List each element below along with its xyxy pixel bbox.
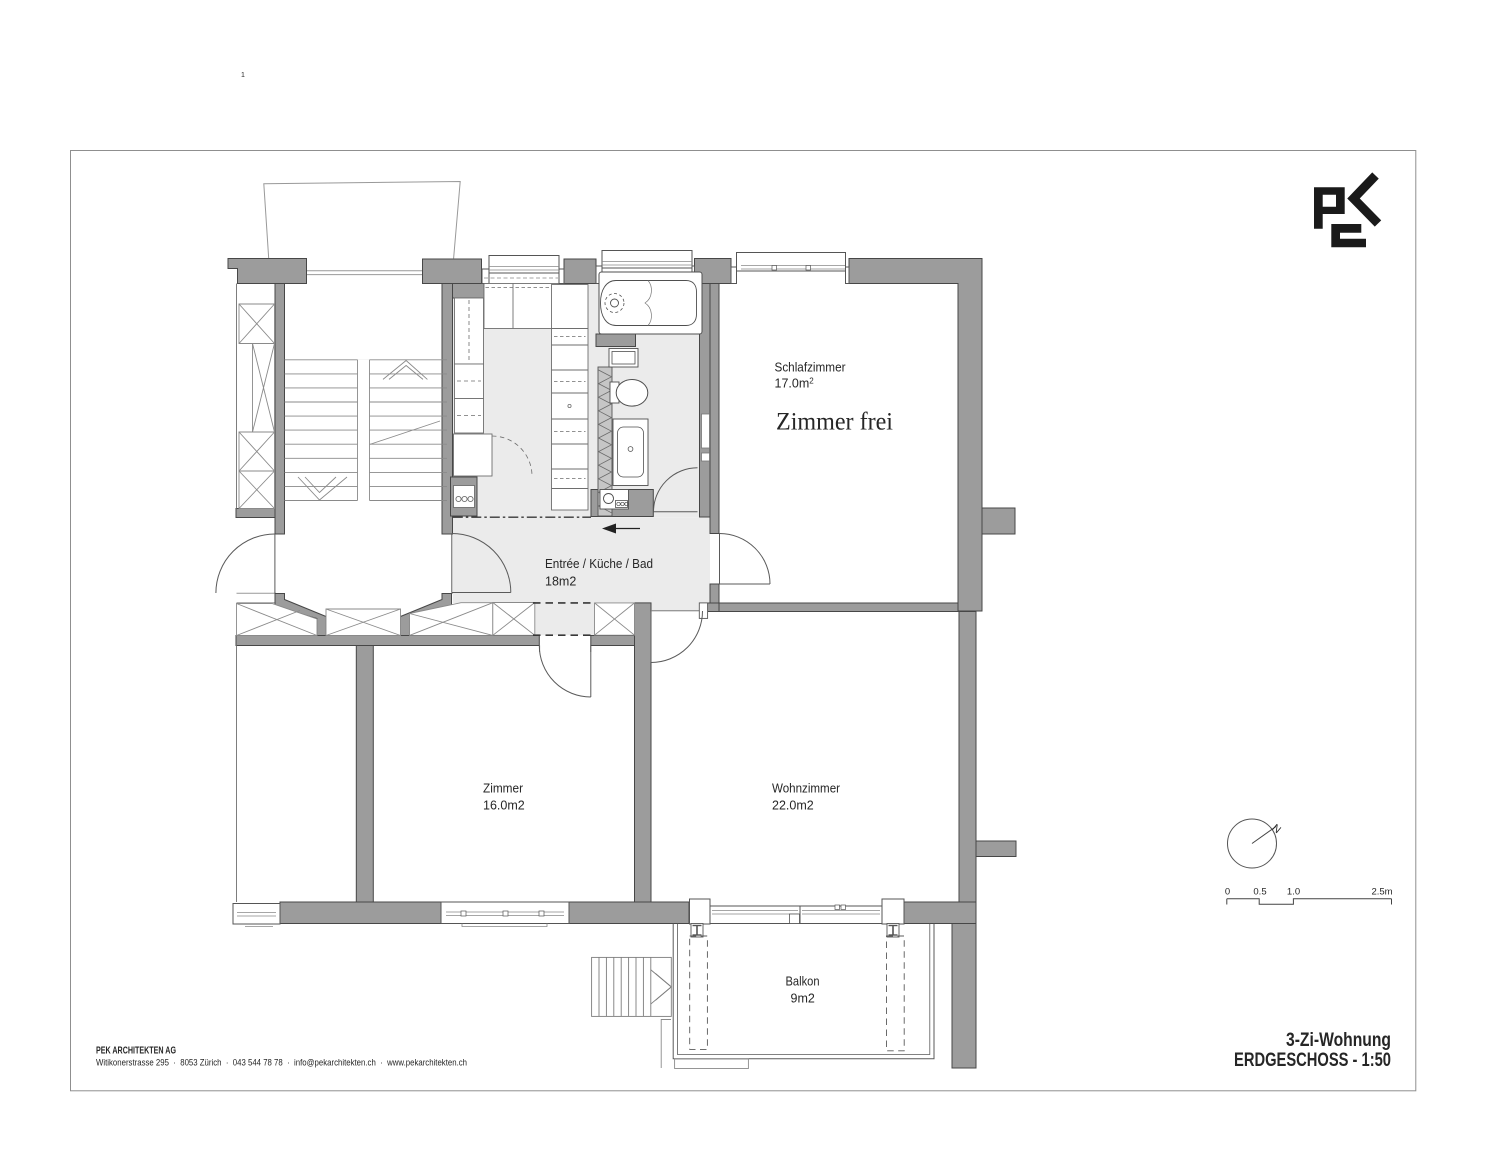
svg-text:16.0m2: 16.0m2 [483, 799, 525, 813]
svg-text:2.5m: 2.5m [1371, 887, 1392, 898]
svg-text:Balkon: Balkon [786, 974, 820, 989]
svg-text:0.5: 0.5 [1253, 887, 1266, 898]
svg-text:Witikonerstrasse 295 · 8053: Witikonerstrasse 295 · 8053 Zürich · 043… [96, 1058, 467, 1069]
svg-text:17.0m2: 17.0m2 [775, 377, 815, 391]
svg-text:Schlafzimmer: Schlafzimmer [775, 360, 847, 375]
svg-text:1.0: 1.0 [1287, 887, 1300, 898]
svg-text:1: 1 [241, 72, 245, 79]
svg-text:0: 0 [1225, 887, 1230, 898]
svg-text:PEK ARCHITEKTEN AG: PEK ARCHITEKTEN AG [96, 1046, 176, 1057]
svg-text:3-Zi-Wohnung: 3-Zi-Wohnung [1286, 1030, 1391, 1051]
svg-text:ERDGESCHOSS - 1:50: ERDGESCHOSS - 1:50 [1234, 1050, 1391, 1071]
svg-text:Wohnzimmer: Wohnzimmer [772, 781, 841, 796]
svg-text:Zimmer: Zimmer [483, 781, 524, 796]
svg-text:9m2: 9m2 [791, 992, 815, 1006]
svg-text:22.0m2: 22.0m2 [772, 799, 814, 813]
svg-text:Entrée / Küche / Bad: Entrée / Küche / Bad [545, 556, 653, 571]
svg-text:Zimmer frei: Zimmer frei [776, 407, 893, 436]
svg-text:18m2: 18m2 [545, 575, 576, 589]
